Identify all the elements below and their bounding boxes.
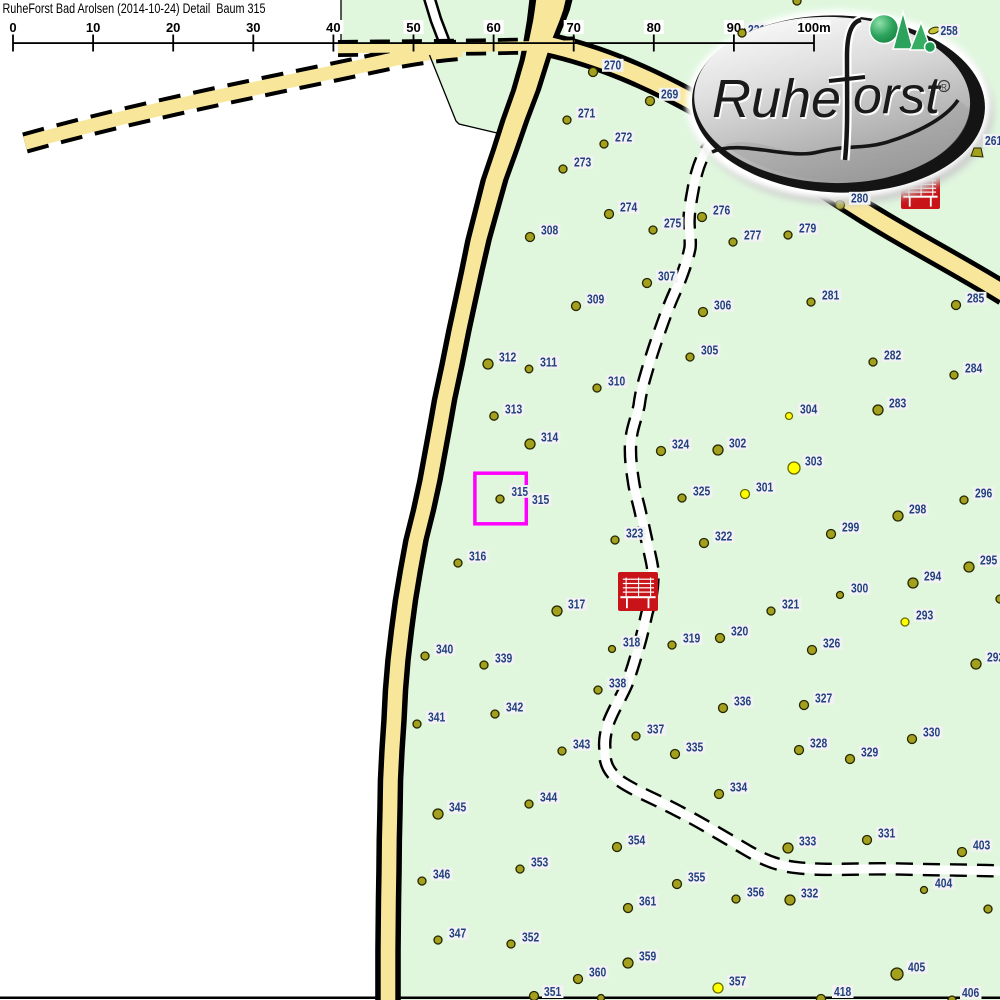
svg-text:282: 282 [884, 348, 901, 363]
svg-text:276: 276 [713, 203, 730, 218]
svg-text:340: 340 [436, 642, 453, 657]
svg-text:303: 303 [805, 454, 822, 469]
svg-text:315: 315 [532, 492, 549, 507]
svg-text:311: 311 [540, 355, 557, 370]
svg-text:308: 308 [541, 223, 558, 238]
svg-text:277: 277 [744, 228, 761, 243]
svg-text:341: 341 [428, 710, 445, 725]
svg-text:RuheForst Bad Arolsen (2014-10: RuheForst Bad Arolsen (2014-10-24) Detai… [3, 0, 266, 16]
svg-text:304: 304 [800, 402, 818, 417]
svg-text:R: R [941, 83, 947, 92]
svg-text:306: 306 [714, 298, 731, 313]
svg-text:347: 347 [449, 926, 466, 941]
svg-text:338: 338 [609, 676, 626, 691]
svg-text:314: 314 [541, 430, 559, 445]
svg-text:331: 331 [878, 826, 895, 841]
svg-text:293: 293 [916, 608, 933, 623]
svg-text:299: 299 [842, 520, 859, 535]
svg-text:10: 10 [86, 20, 100, 35]
svg-text:333: 333 [799, 834, 816, 849]
svg-text:274: 274 [620, 200, 638, 215]
svg-text:361: 361 [639, 894, 656, 909]
svg-text:354: 354 [628, 833, 646, 848]
svg-text:30: 30 [246, 20, 260, 35]
svg-text:50: 50 [406, 20, 420, 35]
svg-text:302: 302 [729, 436, 746, 451]
svg-text:324: 324 [672, 437, 690, 452]
svg-text:332: 332 [801, 886, 818, 901]
svg-text:273: 273 [574, 155, 591, 170]
svg-text:352: 352 [522, 930, 539, 945]
svg-text:345: 345 [449, 800, 466, 815]
svg-text:100m: 100m [797, 20, 830, 35]
svg-text:355: 355 [688, 870, 705, 885]
svg-text:328: 328 [810, 736, 827, 751]
svg-text:298: 298 [909, 502, 926, 517]
svg-text:292: 292 [987, 650, 1000, 665]
svg-text:312: 312 [499, 350, 516, 365]
svg-text:279: 279 [799, 221, 816, 236]
svg-text:40: 40 [326, 20, 340, 35]
svg-text:20: 20 [166, 20, 180, 35]
svg-text:356: 356 [747, 885, 764, 900]
svg-text:357: 357 [729, 974, 746, 989]
svg-text:405: 405 [908, 960, 925, 975]
svg-text:269: 269 [661, 87, 678, 102]
svg-text:258: 258 [941, 23, 958, 38]
svg-text:327: 327 [815, 691, 832, 706]
svg-text:275: 275 [664, 216, 681, 231]
svg-text:271: 271 [578, 106, 595, 121]
svg-text:283: 283 [889, 396, 906, 411]
svg-text:261: 261 [985, 133, 1000, 148]
svg-text:329: 329 [861, 745, 878, 760]
svg-text:284: 284 [965, 361, 983, 376]
svg-text:330: 330 [923, 725, 940, 740]
svg-text:342: 342 [506, 700, 523, 715]
svg-text:270: 270 [604, 58, 621, 73]
svg-text:Ruhe: Ruhe [712, 69, 841, 129]
svg-text:344: 344 [540, 790, 558, 805]
svg-text:336: 336 [734, 694, 751, 709]
svg-text:285: 285 [967, 291, 984, 306]
svg-text:418: 418 [834, 984, 851, 999]
svg-text:319: 319 [683, 631, 700, 646]
svg-text:346: 346 [433, 867, 450, 882]
svg-text:301: 301 [756, 480, 773, 495]
svg-text:313: 313 [505, 402, 522, 417]
svg-text:334: 334 [730, 780, 748, 795]
svg-text:353: 353 [531, 855, 548, 870]
svg-text:318: 318 [623, 635, 640, 650]
svg-text:326: 326 [823, 636, 840, 651]
svg-text:323: 323 [626, 526, 643, 541]
svg-text:339: 339 [495, 651, 512, 666]
svg-text:404: 404 [935, 876, 953, 891]
svg-text:335: 335 [686, 740, 703, 755]
svg-text:296: 296 [975, 486, 992, 501]
svg-text:351: 351 [544, 984, 561, 999]
svg-text:60: 60 [486, 20, 500, 35]
svg-text:320: 320 [731, 624, 748, 639]
svg-text:307: 307 [658, 269, 675, 284]
svg-text:316: 316 [469, 549, 486, 564]
svg-text:325: 325 [693, 484, 710, 499]
svg-text:322: 322 [715, 529, 732, 544]
svg-text:280: 280 [851, 191, 868, 206]
svg-text:305: 305 [701, 343, 718, 358]
svg-text:315: 315 [512, 484, 529, 499]
svg-text:317: 317 [568, 597, 585, 612]
svg-text:310: 310 [608, 374, 625, 389]
svg-text:300: 300 [851, 581, 868, 596]
svg-text:359: 359 [639, 949, 656, 964]
svg-text:295: 295 [980, 553, 997, 568]
svg-text:360: 360 [589, 965, 606, 980]
svg-text:orst: orst [853, 67, 942, 125]
svg-text:337: 337 [647, 722, 664, 737]
svg-text:309: 309 [587, 292, 604, 307]
svg-text:343: 343 [573, 737, 590, 752]
svg-text:80: 80 [647, 20, 661, 35]
svg-text:321: 321 [782, 597, 799, 612]
svg-text:0: 0 [9, 20, 16, 35]
svg-text:403: 403 [973, 838, 990, 853]
svg-text:281: 281 [822, 288, 839, 303]
svg-text:406: 406 [962, 985, 979, 1000]
svg-text:294: 294 [924, 569, 942, 584]
svg-text:70: 70 [566, 20, 580, 35]
svg-text:272: 272 [615, 130, 632, 145]
